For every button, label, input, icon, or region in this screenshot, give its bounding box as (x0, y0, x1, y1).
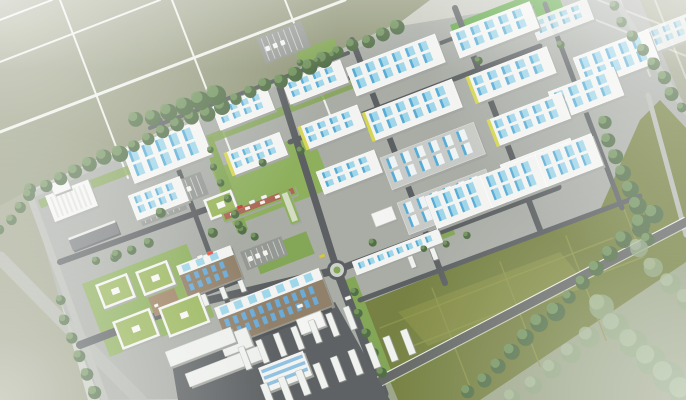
aerial-rendering-canvas (0, 0, 686, 400)
site-aerial-rendering (0, 0, 686, 400)
haze-veil (0, 0, 686, 400)
atmospheric-haze (0, 0, 686, 400)
